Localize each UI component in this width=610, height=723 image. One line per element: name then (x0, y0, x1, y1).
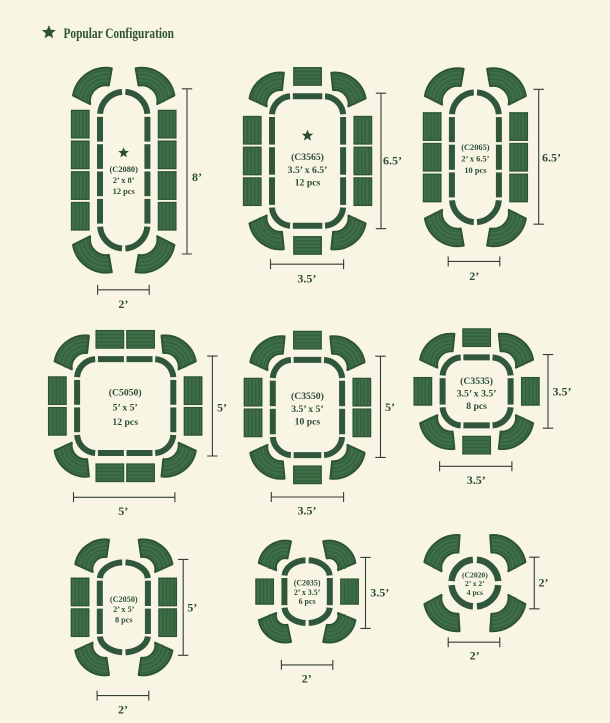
svg-text:8 pcs: 8 pcs (466, 401, 487, 412)
svg-text:2’: 2’ (469, 269, 479, 283)
svg-text:6.5’: 6.5’ (542, 151, 561, 165)
svg-text:5’: 5’ (217, 401, 227, 415)
svg-text:(C2080): (C2080) (110, 165, 139, 174)
svg-text:3.5’ x 6.5’: 3.5’ x 6.5’ (288, 165, 328, 176)
svg-text:2’ x 6.5’: 2’ x 6.5’ (461, 155, 489, 164)
svg-text:2’ x 5’: 2’ x 5’ (113, 605, 134, 614)
svg-text:8’: 8’ (192, 170, 202, 184)
svg-text:3.5’: 3.5’ (467, 473, 486, 487)
svg-text:5’: 5’ (187, 600, 197, 614)
svg-text:5’ x 5’: 5’ x 5’ (113, 402, 138, 413)
svg-text:5’: 5’ (118, 504, 128, 518)
svg-text:12 pcs: 12 pcs (113, 187, 136, 196)
svg-text:5’: 5’ (385, 400, 395, 414)
svg-text:(C3535): (C3535) (460, 376, 493, 387)
svg-text:3.5’: 3.5’ (298, 504, 317, 518)
svg-text:(C2050): (C2050) (110, 595, 138, 604)
svg-text:Popular Configuration: Popular Configuration (64, 26, 175, 42)
svg-text:2’ x 2’: 2’ x 2’ (465, 579, 485, 588)
svg-text:2’: 2’ (539, 576, 549, 590)
svg-text:8 pcs: 8 pcs (115, 616, 133, 625)
svg-text:(C2065): (C2065) (461, 143, 490, 152)
svg-text:2’ x 8’: 2’ x 8’ (113, 176, 135, 185)
svg-text:6.5’: 6.5’ (383, 154, 402, 168)
svg-text:3.5’ x 3.5’: 3.5’ x 3.5’ (457, 388, 497, 399)
svg-text:3.5’: 3.5’ (297, 272, 316, 286)
svg-text:12 pcs: 12 pcs (112, 417, 138, 428)
svg-text:3.5’: 3.5’ (553, 385, 572, 399)
svg-text:3.5’: 3.5’ (370, 586, 389, 600)
svg-text:(C3565): (C3565) (291, 152, 324, 163)
svg-text:2’ x 3.5’: 2’ x 3.5’ (294, 588, 321, 597)
svg-text:2’: 2’ (470, 648, 480, 662)
svg-text:4 pcs: 4 pcs (467, 588, 483, 597)
svg-text:10 pcs: 10 pcs (464, 166, 487, 175)
svg-text:10 pcs: 10 pcs (295, 416, 321, 427)
svg-text:3.5’ x 5’: 3.5’ x 5’ (291, 404, 323, 415)
svg-text:2’: 2’ (118, 297, 128, 311)
svg-text:(C3550): (C3550) (291, 391, 324, 402)
svg-text:(C2020): (C2020) (462, 570, 488, 579)
svg-text:(C2035): (C2035) (294, 579, 321, 588)
svg-text:6 pcs: 6 pcs (299, 597, 316, 606)
svg-text:12 pcs: 12 pcs (295, 178, 321, 189)
svg-text:2’: 2’ (118, 703, 128, 717)
svg-text:(C5050): (C5050) (109, 388, 142, 399)
svg-text:2’: 2’ (302, 672, 312, 686)
